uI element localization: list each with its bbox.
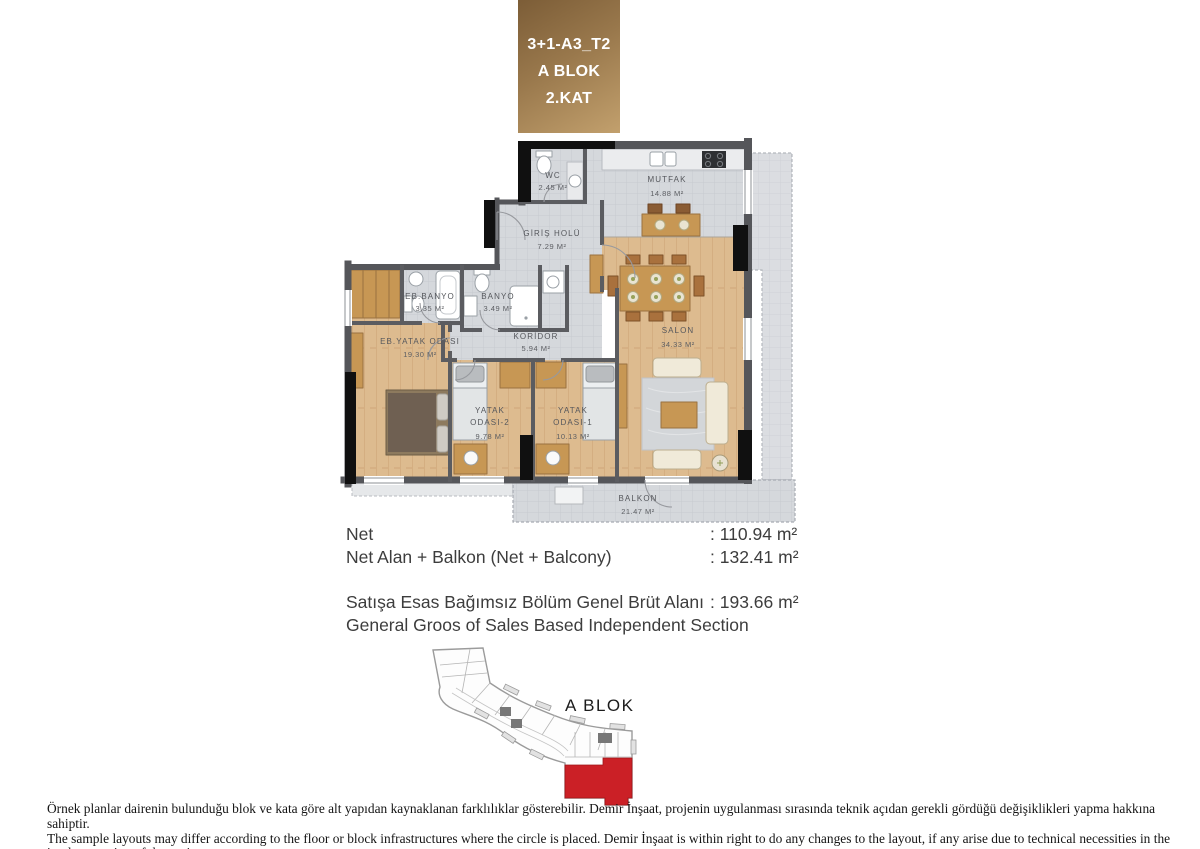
label-yatak2-l2: ODASI-2 (470, 418, 510, 427)
disclaimer-english: The sample layouts may differ according … (47, 832, 1192, 849)
label-koridor: KORİDOR (513, 332, 558, 341)
single-bed-1 (583, 363, 617, 440)
label-yatak1-l1: YATAK (558, 406, 588, 415)
net-value: : 110.94 m² (710, 524, 797, 545)
label-giris-holu: GİRİŞ HOLÜ (523, 229, 580, 238)
area-yatak2: 9.78 M² (476, 432, 505, 441)
net-balcony-value: : 132.41 m² (710, 547, 799, 568)
label-balkon: BALKON (618, 494, 657, 503)
block-name: A BLOK (518, 58, 620, 85)
gross-label-tr: Satışa Esas Bağımsız Bölüm Genel Brüt Al… (346, 592, 704, 613)
sofa-bottom (653, 450, 701, 469)
double-bed (386, 390, 450, 455)
label-wc: WC (545, 171, 561, 180)
label-eb-yatak: EB.YATAK ODASI (380, 337, 460, 346)
bathroom-toilet (474, 269, 490, 292)
floor-name: 2.KAT (518, 85, 620, 112)
label-banyo: BANYO (481, 292, 515, 301)
bathroom-sink (464, 296, 477, 316)
disclaimer-turkish: Örnek planlar dairenin bulunduğu blok ve… (47, 802, 1192, 832)
wardrobe-master-top (350, 270, 400, 318)
unit-location-highlight (565, 758, 632, 805)
desk-chair-1 (546, 451, 560, 465)
net-label: Net (346, 524, 373, 545)
apartment-floor-plan: WC 2.45 M² MUTFAK 14.88 M² GİRİŞ HOLÜ 7.… (340, 138, 800, 530)
area-balkon: 21.47 M² (621, 507, 655, 516)
label-salon: SALON (662, 326, 695, 335)
area-banyo: 3.49 M² (484, 304, 513, 313)
balcony-ac-unit (555, 487, 583, 504)
area-salon: 34.33 M² (661, 340, 695, 349)
area-mutfak: 14.88 M² (650, 189, 684, 198)
area-eb-yatak: 19.30 M² (403, 350, 437, 359)
area-giris-holu: 7.29 M² (538, 242, 567, 251)
site-block-label: A BLOK (565, 696, 634, 715)
disclaimer: Örnek planlar dairenin bulunduğu blok ve… (47, 802, 1192, 849)
wardrobe-bedroom1 (536, 362, 566, 388)
terrace-common-area (748, 153, 792, 480)
unit-type-badge: 3+1-A3_T2 A BLOK 2.KAT (518, 0, 620, 133)
master-bath-sink (409, 272, 423, 286)
washing-machine (543, 271, 564, 293)
gross-label-en: General Groos of Sales Based Independent… (346, 615, 749, 636)
unit-code: 3+1-A3_T2 (518, 31, 620, 58)
wardrobe-bedroom2 (500, 362, 530, 388)
area-yatak1: 10.13 M² (556, 432, 590, 441)
wc-sink-counter (567, 162, 583, 200)
label-yatak2-l1: YATAK (475, 406, 505, 415)
area-eb-banyo: 3.35 M² (416, 304, 445, 313)
sofa-right (706, 382, 728, 444)
desk-chair-2 (464, 451, 478, 465)
floor-plan-page: 3+1-A3_T2 A BLOK 2.KAT (0, 0, 1200, 849)
label-yatak1-l2: ODASI-1 (553, 418, 593, 427)
label-mutfak: MUTFAK (647, 175, 686, 184)
area-wc: 2.45 M² (539, 183, 568, 192)
stove (702, 151, 726, 168)
net-balcony-label: Net Alan + Balkon (Net + Balcony) (346, 547, 612, 568)
single-bed-2 (453, 363, 487, 440)
coffee-table (661, 402, 697, 428)
site-key-plan: A BLOK (420, 645, 700, 810)
sofa-top (653, 358, 701, 377)
area-koridor: 5.94 M² (522, 344, 551, 353)
kitchen-sink (650, 152, 676, 166)
gross-value: : 193.66 m² (710, 592, 799, 613)
label-eb-banyo: EB.BANYO (405, 292, 455, 301)
